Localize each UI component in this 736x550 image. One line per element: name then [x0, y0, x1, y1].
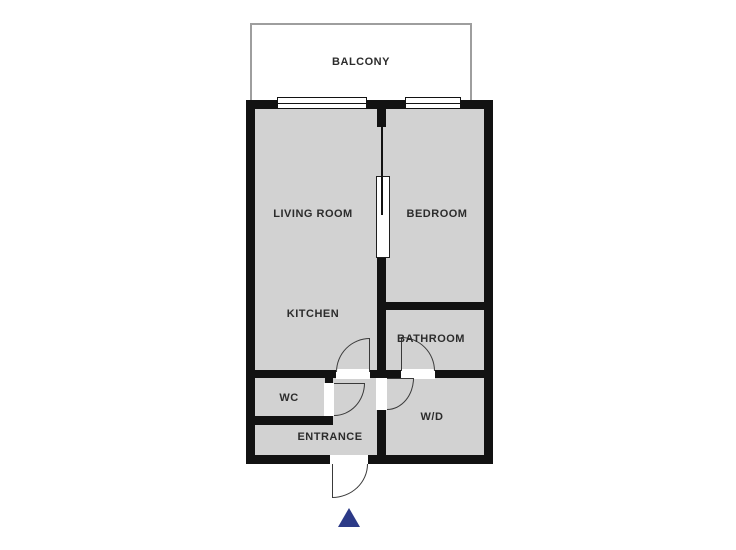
sliding-door-track [381, 127, 383, 215]
wall-segment-wc-bottom [255, 416, 333, 425]
door-opening-wc [324, 383, 334, 416]
window-pane-line [406, 103, 460, 105]
balcony-label: BALCONY [332, 56, 390, 68]
wall-segment-central-top [377, 109, 386, 127]
apartment-outline [246, 100, 493, 464]
room-label-kitchen: KITCHEN [287, 308, 339, 320]
room-label-living-room: LIVING ROOM [273, 208, 352, 220]
window-living-room [277, 97, 367, 109]
door-opening-wd [376, 378, 387, 410]
wall-segment-central-bottom [377, 410, 386, 455]
wall-segment-central-mid [377, 258, 386, 370]
wall-segment-kitchen-bottom-left [255, 370, 336, 378]
room-label-bathroom: BATHROOM [397, 333, 465, 345]
sliding-door-panel [376, 176, 390, 258]
room-label-entrance: ENTRANCE [297, 431, 362, 443]
floorplan-canvas: BALCONY LIVING ROOM BEDROOM KITCHEN BATH… [0, 0, 736, 550]
door-swing-entrance [332, 464, 368, 498]
room-label-bedroom: BEDROOM [407, 208, 468, 220]
wall-segment-bathroom-bottom-right [435, 370, 484, 378]
room-label-washer-dryer: W/D [421, 411, 444, 423]
window-bedroom [405, 97, 461, 109]
room-label-wc: WC [279, 392, 298, 404]
wall-segment-bedroom-bathroom [386, 302, 484, 310]
north-arrow-icon [338, 508, 360, 527]
wall-segment-kitchen-bottom-mid [370, 370, 401, 378]
window-pane-line [278, 103, 366, 105]
